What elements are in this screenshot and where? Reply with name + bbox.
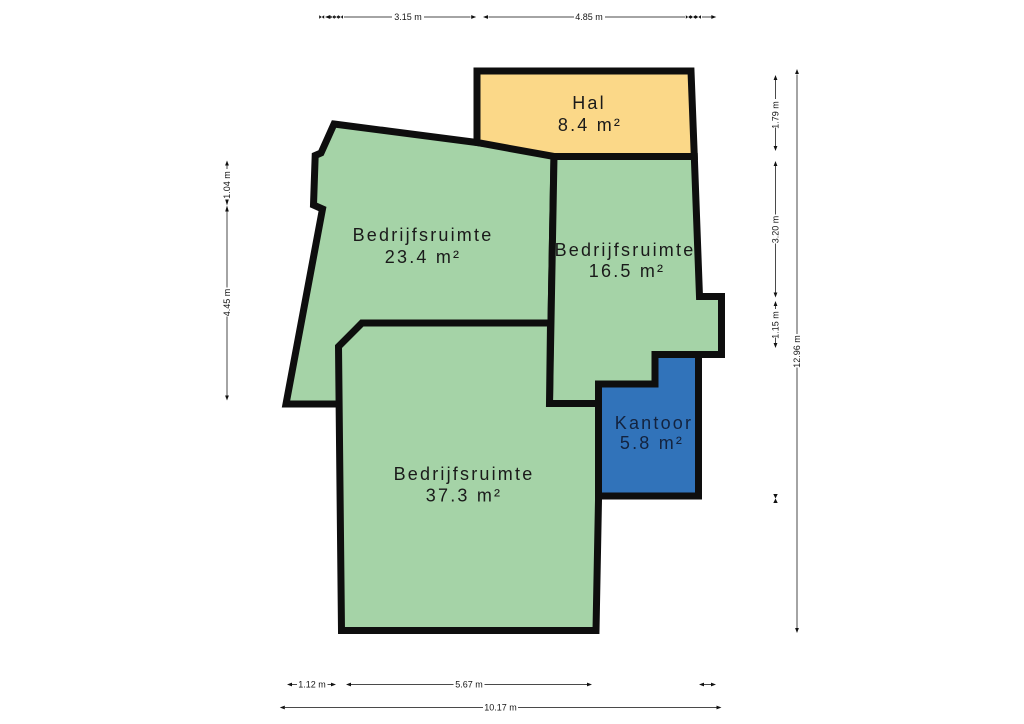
svg-text:37.3 m²: 37.3 m² (426, 486, 502, 506)
svg-text:4.45 m: 4.45 m (222, 289, 232, 317)
svg-text:4.85 m: 4.85 m (575, 12, 603, 22)
svg-text:Bedrijfsruimte: Bedrijfsruimte (353, 225, 494, 245)
svg-text:1.04 m: 1.04 m (222, 171, 232, 199)
svg-text:16.5 m²: 16.5 m² (589, 261, 665, 281)
svg-text:5.67 m: 5.67 m (455, 680, 483, 690)
svg-text:Hal: Hal (572, 93, 606, 113)
svg-text:3.20 m: 3.20 m (771, 216, 781, 244)
svg-text:10.17 m: 10.17 m (484, 703, 517, 713)
svg-text:Bedrijfsruimte: Bedrijfsruimte (555, 240, 696, 260)
svg-text:8.4 m²: 8.4 m² (558, 115, 622, 135)
svg-text:5.8 m²: 5.8 m² (620, 433, 684, 453)
svg-text:1.12 m: 1.12 m (298, 680, 326, 690)
svg-text:3.15 m: 3.15 m (394, 12, 422, 22)
svg-text:1.79 m: 1.79 m (771, 101, 781, 129)
svg-text:Kantoor: Kantoor (615, 413, 693, 433)
svg-text:23.4 m²: 23.4 m² (385, 247, 461, 267)
svg-text:Bedrijfsruimte: Bedrijfsruimte (394, 464, 535, 484)
svg-text:12.96 m: 12.96 m (792, 335, 802, 368)
svg-text:1.15 m: 1.15 m (771, 311, 781, 339)
